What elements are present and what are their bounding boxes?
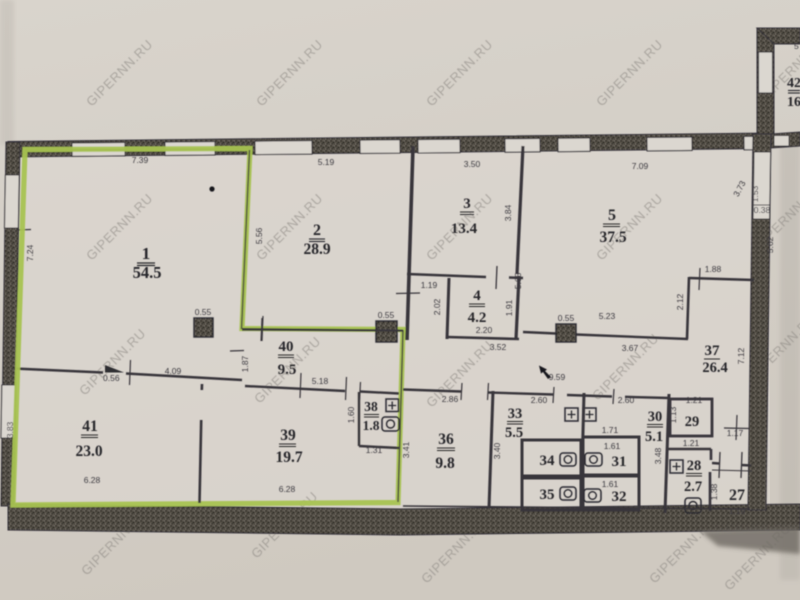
svg-text:19.7: 19.7	[275, 449, 302, 466]
svg-text:41: 41	[82, 418, 98, 435]
svg-text:3.48: 3.48	[653, 447, 663, 464]
svg-text:1.21: 1.21	[686, 395, 703, 405]
svg-text:35: 35	[540, 487, 555, 503]
svg-text:6.28: 6.28	[279, 484, 296, 494]
svg-text:3.50: 3.50	[464, 159, 481, 169]
svg-text:3.52: 3.52	[490, 342, 507, 352]
svg-text:3.83: 3.83	[5, 421, 15, 438]
svg-text:9.59: 9.59	[549, 372, 566, 382]
svg-text:2: 2	[313, 222, 321, 239]
svg-text:7.39: 7.39	[132, 155, 149, 165]
svg-text:30: 30	[648, 409, 663, 425]
svg-text:0.55: 0.55	[378, 310, 395, 320]
svg-text:4.2: 4.2	[468, 310, 487, 326]
svg-text:1.60: 1.60	[346, 406, 356, 423]
svg-text:28: 28	[687, 458, 702, 474]
svg-text:1.21: 1.21	[683, 438, 700, 448]
svg-text:27: 27	[729, 487, 745, 504]
svg-text:1.61: 1.61	[604, 441, 621, 451]
svg-text:5: 5	[608, 207, 616, 224]
svg-text:33: 33	[508, 406, 523, 422]
svg-text:3.41: 3.41	[401, 441, 411, 458]
svg-text:1.61: 1.61	[602, 479, 619, 489]
svg-text:0.55: 0.55	[195, 307, 212, 317]
svg-text:7.09: 7.09	[632, 161, 649, 171]
svg-text:2.20: 2.20	[476, 325, 493, 335]
svg-text:2.12: 2.12	[675, 293, 685, 310]
svg-text:42: 42	[787, 76, 800, 91]
svg-text:7.24: 7.24	[25, 244, 35, 261]
svg-text:13.4: 13.4	[451, 221, 478, 237]
svg-text:38: 38	[364, 399, 378, 414]
svg-text:2.60: 2.60	[531, 395, 548, 405]
svg-text:34: 34	[540, 453, 556, 469]
svg-text:3: 3	[463, 196, 471, 212]
svg-text:5.18: 5.18	[312, 376, 329, 386]
svg-text:0.56: 0.56	[103, 373, 120, 383]
svg-text:1: 1	[142, 244, 151, 263]
svg-text:2.60: 2.60	[618, 395, 635, 405]
svg-text:1.53: 1.53	[750, 185, 760, 202]
svg-text:31: 31	[612, 454, 627, 470]
svg-text:2.02: 2.02	[432, 298, 442, 315]
svg-text:2.86: 2.86	[442, 394, 459, 404]
svg-text:32: 32	[612, 489, 627, 505]
svg-text:5.23: 5.23	[599, 311, 616, 321]
svg-text:37.5: 37.5	[599, 229, 626, 246]
svg-text:26.4: 26.4	[702, 360, 727, 376]
svg-text:5.19: 5.19	[318, 157, 335, 167]
svg-text:29: 29	[685, 414, 700, 430]
svg-text:3.84: 3.84	[503, 204, 513, 221]
svg-text:54.5: 54.5	[133, 263, 162, 282]
svg-text:1.87: 1.87	[240, 355, 250, 372]
svg-text:3.67: 3.67	[622, 343, 639, 353]
svg-text:1.8: 1.8	[363, 418, 380, 433]
svg-text:7.12: 7.12	[736, 347, 746, 364]
svg-text:4.09: 4.09	[165, 366, 182, 376]
svg-text:4: 4	[473, 288, 481, 304]
svg-text:5.5: 5.5	[505, 425, 523, 441]
svg-text:1.88: 1.88	[705, 264, 722, 274]
svg-text:1.19: 1.19	[729, 506, 746, 516]
svg-text:36: 36	[438, 431, 454, 448]
svg-text:28.9: 28.9	[303, 241, 330, 258]
svg-text:0.55: 0.55	[558, 313, 575, 323]
svg-text:1.17: 1.17	[727, 428, 744, 438]
svg-text:9.8: 9.8	[435, 455, 455, 472]
svg-text:1.38: 1.38	[709, 483, 719, 500]
svg-text:5: 5	[794, 41, 799, 51]
svg-text:9.5: 9.5	[278, 362, 297, 378]
svg-text:1.91: 1.91	[504, 299, 514, 316]
svg-text:5.56: 5.56	[254, 227, 264, 244]
svg-text:40: 40	[279, 339, 294, 355]
svg-text:5.62: 5.62	[765, 236, 775, 253]
svg-text:3.40: 3.40	[492, 442, 502, 459]
svg-text:6.28: 6.28	[84, 475, 101, 485]
svg-text:23.0: 23.0	[75, 443, 102, 460]
svg-text:16.: 16.	[787, 95, 800, 110]
svg-text:1.71: 1.71	[602, 425, 619, 435]
svg-text:1.31: 1.31	[366, 445, 383, 455]
svg-text:1.19: 1.19	[421, 280, 438, 290]
svg-text:2.7: 2.7	[684, 479, 702, 495]
svg-text:37: 37	[705, 343, 721, 359]
svg-text:5.1: 5.1	[645, 429, 663, 445]
svg-text:39: 39	[280, 427, 296, 444]
svg-text:1.13: 1.13	[668, 406, 678, 423]
svg-text:0.38: 0.38	[754, 205, 771, 215]
